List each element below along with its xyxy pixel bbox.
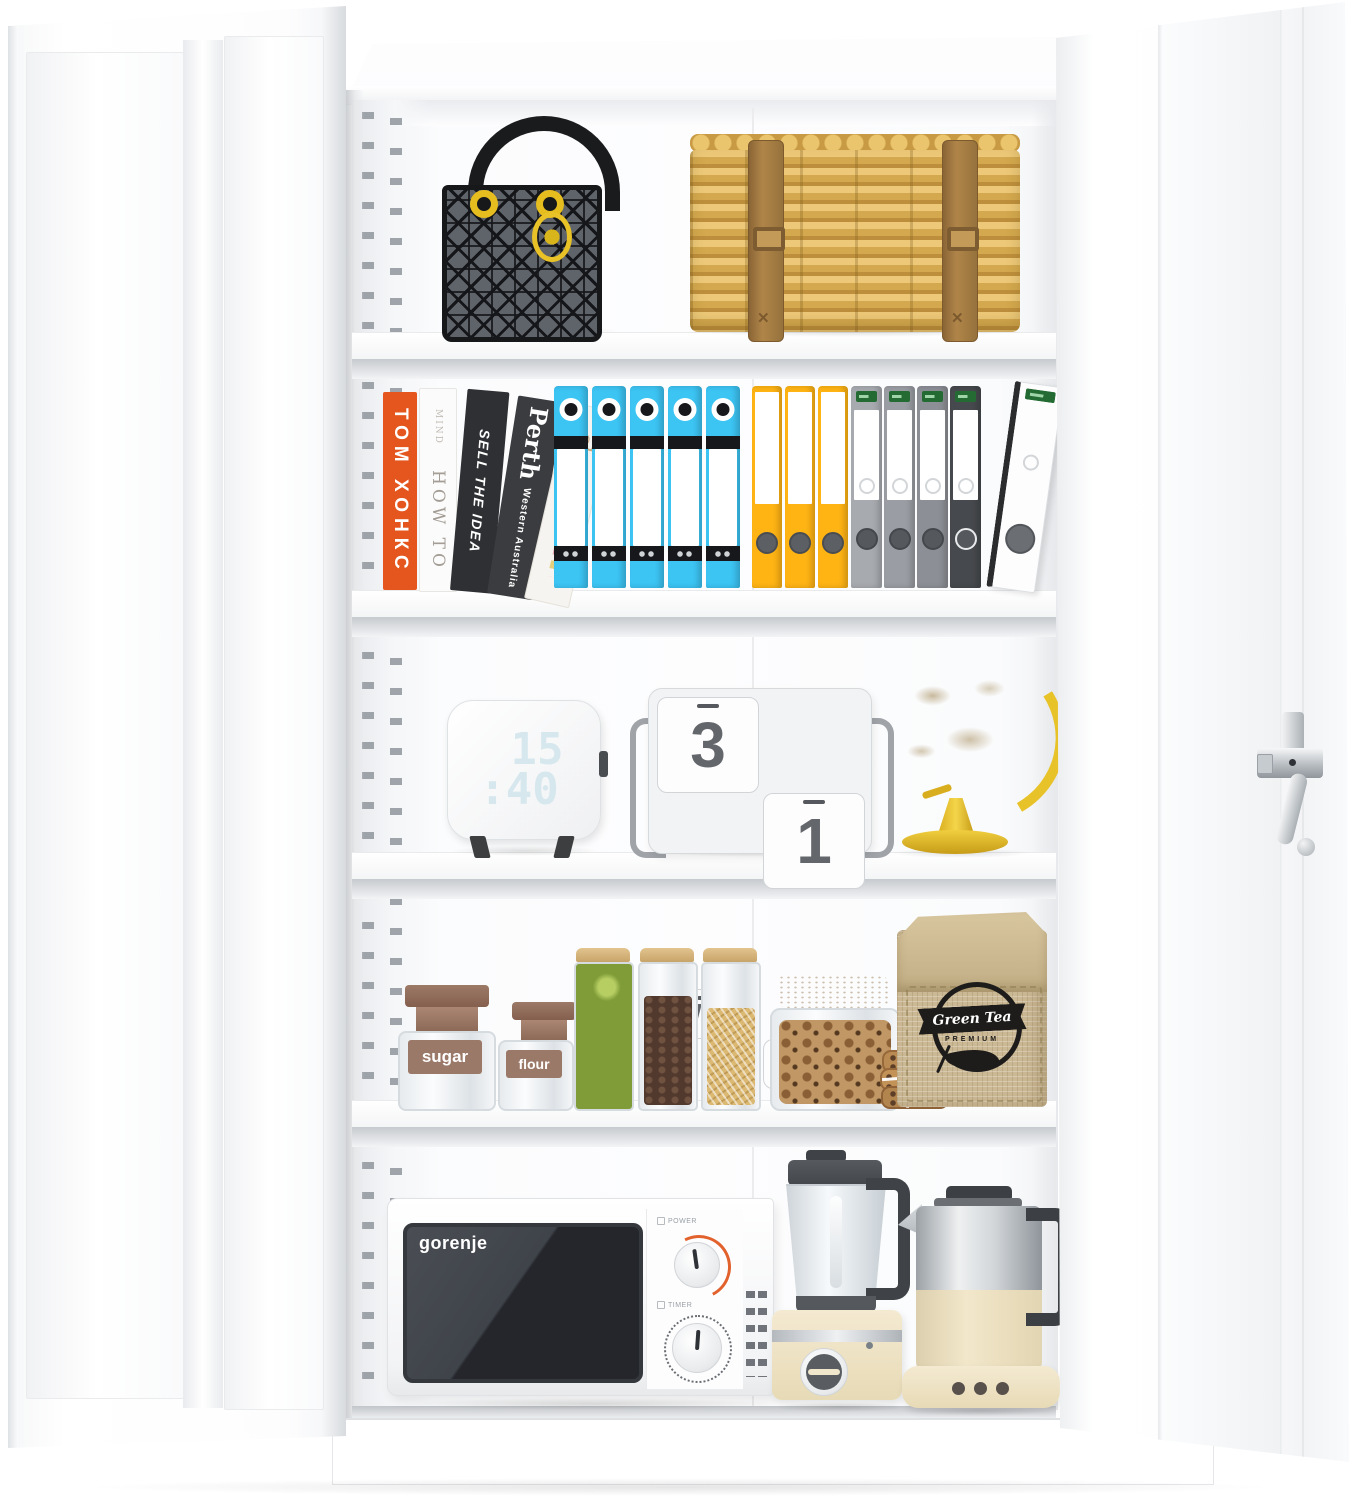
basket-stitch-left: ✕ <box>757 309 770 327</box>
handbag-body <box>442 185 602 342</box>
binder-sticker <box>1025 388 1056 403</box>
binder-gray <box>851 386 882 588</box>
basket-stitch-right: ✕ <box>951 309 964 327</box>
binder-blue <box>554 386 588 588</box>
binder-label-logo <box>925 478 941 494</box>
shelf-1-underside <box>352 359 1056 379</box>
left-door-recessed-panel <box>224 36 324 1410</box>
binder-stripe <box>668 546 702 561</box>
left-door-outer-edge <box>8 26 18 1448</box>
book-title: Perth <box>514 405 554 482</box>
binder-spine-hole <box>636 398 659 421</box>
calendar-digit: 1 <box>796 804 832 878</box>
binder-stripe <box>630 436 664 449</box>
blender-dial-bar <box>808 1369 840 1375</box>
binder-spine-hole <box>560 398 583 421</box>
flour-jar-lid-neck <box>521 1020 567 1040</box>
microwave-power-label: POWER <box>657 1217 697 1225</box>
power-knob-pointer <box>692 1249 699 1269</box>
binder-gray <box>917 386 948 588</box>
microwave: gorenje POWER TIMER <box>387 1198 774 1396</box>
cabinet-interior-ceiling <box>352 100 1056 126</box>
binder-stripe <box>592 436 626 449</box>
binder-yellow <box>752 386 782 588</box>
tea-bag-fold-flap <box>897 912 1047 992</box>
ground-shadow <box>80 1478 1280 1496</box>
book-subtitle: MIND <box>433 409 443 445</box>
clock-side-knob <box>599 751 608 777</box>
shelf-3-underside <box>352 879 1056 899</box>
book-subtitle: Western Australia <box>506 487 533 589</box>
basket-buckle-right <box>947 227 979 251</box>
flour-jar-label: flour <box>506 1050 562 1078</box>
microwave-door-window: gorenje <box>403 1223 643 1383</box>
binder-label <box>788 392 812 504</box>
binder-stripe <box>630 546 664 561</box>
left-door-open[interactable] <box>0 0 360 1460</box>
binder-finger-hole <box>789 532 811 554</box>
keyhole <box>1289 759 1296 766</box>
blender-shadow <box>775 1402 905 1412</box>
blender-base-silver-band <box>772 1330 902 1342</box>
sugar-label-text: sugar <box>422 1047 468 1067</box>
microwave-brand-logo: gorenje <box>419 1233 488 1254</box>
kettle-base-plate <box>902 1366 1060 1408</box>
binder-stripe <box>668 436 702 449</box>
binder-blue <box>668 386 702 588</box>
coffee-beans-fill <box>644 996 692 1105</box>
book-title: HOW TO <box>428 470 448 571</box>
pasta-canister <box>701 962 761 1111</box>
blender-base <box>772 1310 902 1400</box>
binder-label <box>821 392 845 504</box>
calendar-card-day-tens: 3 <box>657 697 759 793</box>
blender-dial[interactable] <box>800 1348 848 1396</box>
left-door-hinge-edge <box>322 0 346 1448</box>
limes-canister-lid <box>576 948 630 962</box>
binder-sticker <box>889 391 911 402</box>
right-door-recessed-panel <box>1162 0 1280 1470</box>
handbag-gold-charm <box>532 212 572 262</box>
binder-rings-icon <box>600 550 618 558</box>
flip-calendar: 3 1 WED VI JUNE <box>648 688 872 854</box>
book-spine-orange: ТОМ ХОНКС <box>383 392 417 590</box>
globe-stand-base <box>902 830 1008 854</box>
binder-label <box>953 410 978 500</box>
binder-yellow <box>818 386 848 588</box>
kettle-button[interactable] <box>974 1382 987 1395</box>
binder-spine-hole <box>712 398 735 421</box>
microwave-timer-label: TIMER <box>657 1301 692 1309</box>
microwave-side-vents <box>758 1291 767 1377</box>
binder-label-logo <box>859 478 875 494</box>
binder-label-logo <box>892 478 908 494</box>
left-door-recessed-panel <box>26 52 184 1399</box>
book-spine-white: MIND HOW TO <box>419 388 457 592</box>
microwave-shadow <box>400 1398 780 1410</box>
tea-grade-text: PREMIUM <box>932 1036 1012 1043</box>
right-door-open[interactable] <box>1050 0 1361 1470</box>
binder-finger-hole <box>756 532 778 554</box>
basket-strap-right: ✕ <box>942 140 978 342</box>
binder-finger-hole <box>856 528 878 550</box>
pasta-fill <box>707 1008 755 1105</box>
binder-gray <box>884 386 915 588</box>
kettle-button[interactable] <box>996 1382 1009 1395</box>
binder-sticker <box>856 391 878 402</box>
sugar-jar-label: sugar <box>408 1040 482 1074</box>
binder-finger-hole <box>955 528 977 550</box>
calendar-digit: 3 <box>690 708 726 782</box>
lock-cylinder-plate <box>1282 712 1304 752</box>
sugar-jar-lid-neck <box>416 1007 478 1031</box>
timer-label-text: TIMER <box>668 1302 692 1309</box>
product-photo-storage-cabinet: ✕ ✕ ТОМ ХОНКС MIND HOW TO SELL THE IDEA … <box>0 0 1361 1500</box>
digital-clock: 15 :40 <box>447 700 601 840</box>
microwave-control-panel: POWER TIMER <box>646 1209 743 1389</box>
binder-rings-icon <box>676 550 694 558</box>
binder-finger-hole <box>922 528 944 550</box>
binder-stripe <box>706 546 740 561</box>
shelf-2 <box>352 590 1056 618</box>
coffee-canister-lid <box>640 948 694 962</box>
flour-label-text: flour <box>518 1056 549 1072</box>
lock-body[interactable] <box>1257 748 1323 778</box>
kettle-body-steel <box>916 1206 1042 1290</box>
microwave-side-vents <box>746 1291 755 1377</box>
sugar-jar-lid-top <box>405 985 489 1007</box>
basket-strap-left: ✕ <box>748 140 784 342</box>
binder-finger-hole <box>822 532 844 554</box>
binder-label <box>755 392 779 504</box>
binder-blue <box>592 386 626 588</box>
binder-stripe <box>554 546 588 561</box>
book-title: ТОМ ХОНКС <box>389 392 411 590</box>
binder-sticker <box>955 391 977 402</box>
coffee-canister <box>638 962 698 1111</box>
flour-jar-lid-top <box>512 1002 576 1020</box>
binder-stripe <box>592 546 626 561</box>
left-hinge-shadow <box>344 90 364 1420</box>
binder-label <box>595 449 623 546</box>
binder-rings-icon <box>562 550 580 558</box>
calendar-card-day-ones: 1 <box>763 793 865 889</box>
binder-label-logo <box>958 478 974 494</box>
binder-label <box>671 449 699 546</box>
binder-sticker <box>922 391 944 402</box>
clock-screen: 15 :40 <box>460 713 588 827</box>
shelf-4-underside <box>352 1127 1056 1147</box>
clock-minutes: :40 <box>460 770 588 810</box>
cookies-fill <box>779 1020 891 1104</box>
binder-label <box>854 410 879 500</box>
blender-led <box>866 1342 873 1349</box>
binder-label <box>709 449 737 546</box>
lock-latch <box>1257 754 1273 774</box>
binder-spine-hole <box>674 398 697 421</box>
binder-stripe <box>554 436 588 449</box>
microwave-timer-knob[interactable] <box>672 1323 722 1373</box>
binder-gray <box>950 386 981 588</box>
binder-finger-hole <box>889 528 911 550</box>
pasta-canister-lid <box>703 948 757 962</box>
binder-blue <box>630 386 664 588</box>
binder-rings-icon <box>714 550 732 558</box>
binder-stripe <box>706 436 740 449</box>
binder-label <box>557 449 585 546</box>
blender-blade-column <box>830 1196 842 1288</box>
basket-buckle-left <box>753 227 785 251</box>
power-label-text: POWER <box>668 1218 697 1225</box>
binder-spine-hole <box>598 398 621 421</box>
binder-finger-hole <box>1003 522 1037 556</box>
binder-label-logo <box>1022 454 1040 472</box>
handbag-gold-ring-left <box>470 190 498 218</box>
binder-label <box>920 410 945 500</box>
kettle-button[interactable] <box>952 1382 965 1395</box>
binder-label <box>633 449 661 546</box>
left-door-center-stile <box>183 40 223 1408</box>
shelf-2-underside <box>352 617 1056 637</box>
binder-label <box>887 410 912 500</box>
blender-handle[interactable] <box>866 1178 910 1300</box>
tea-brand-text: Green Tea <box>932 1009 1012 1029</box>
lock-lever-tip <box>1297 838 1315 856</box>
limes-canister <box>574 962 634 1111</box>
timer-knob-pointer <box>695 1330 700 1350</box>
kettle-body-cream <box>916 1290 1042 1372</box>
binder-yellow <box>785 386 815 588</box>
binder-blue <box>706 386 740 588</box>
binder-rings-icon <box>638 550 656 558</box>
microwave-power-knob[interactable] <box>674 1242 720 1288</box>
cookie-jar-cork-lid <box>778 975 888 1008</box>
